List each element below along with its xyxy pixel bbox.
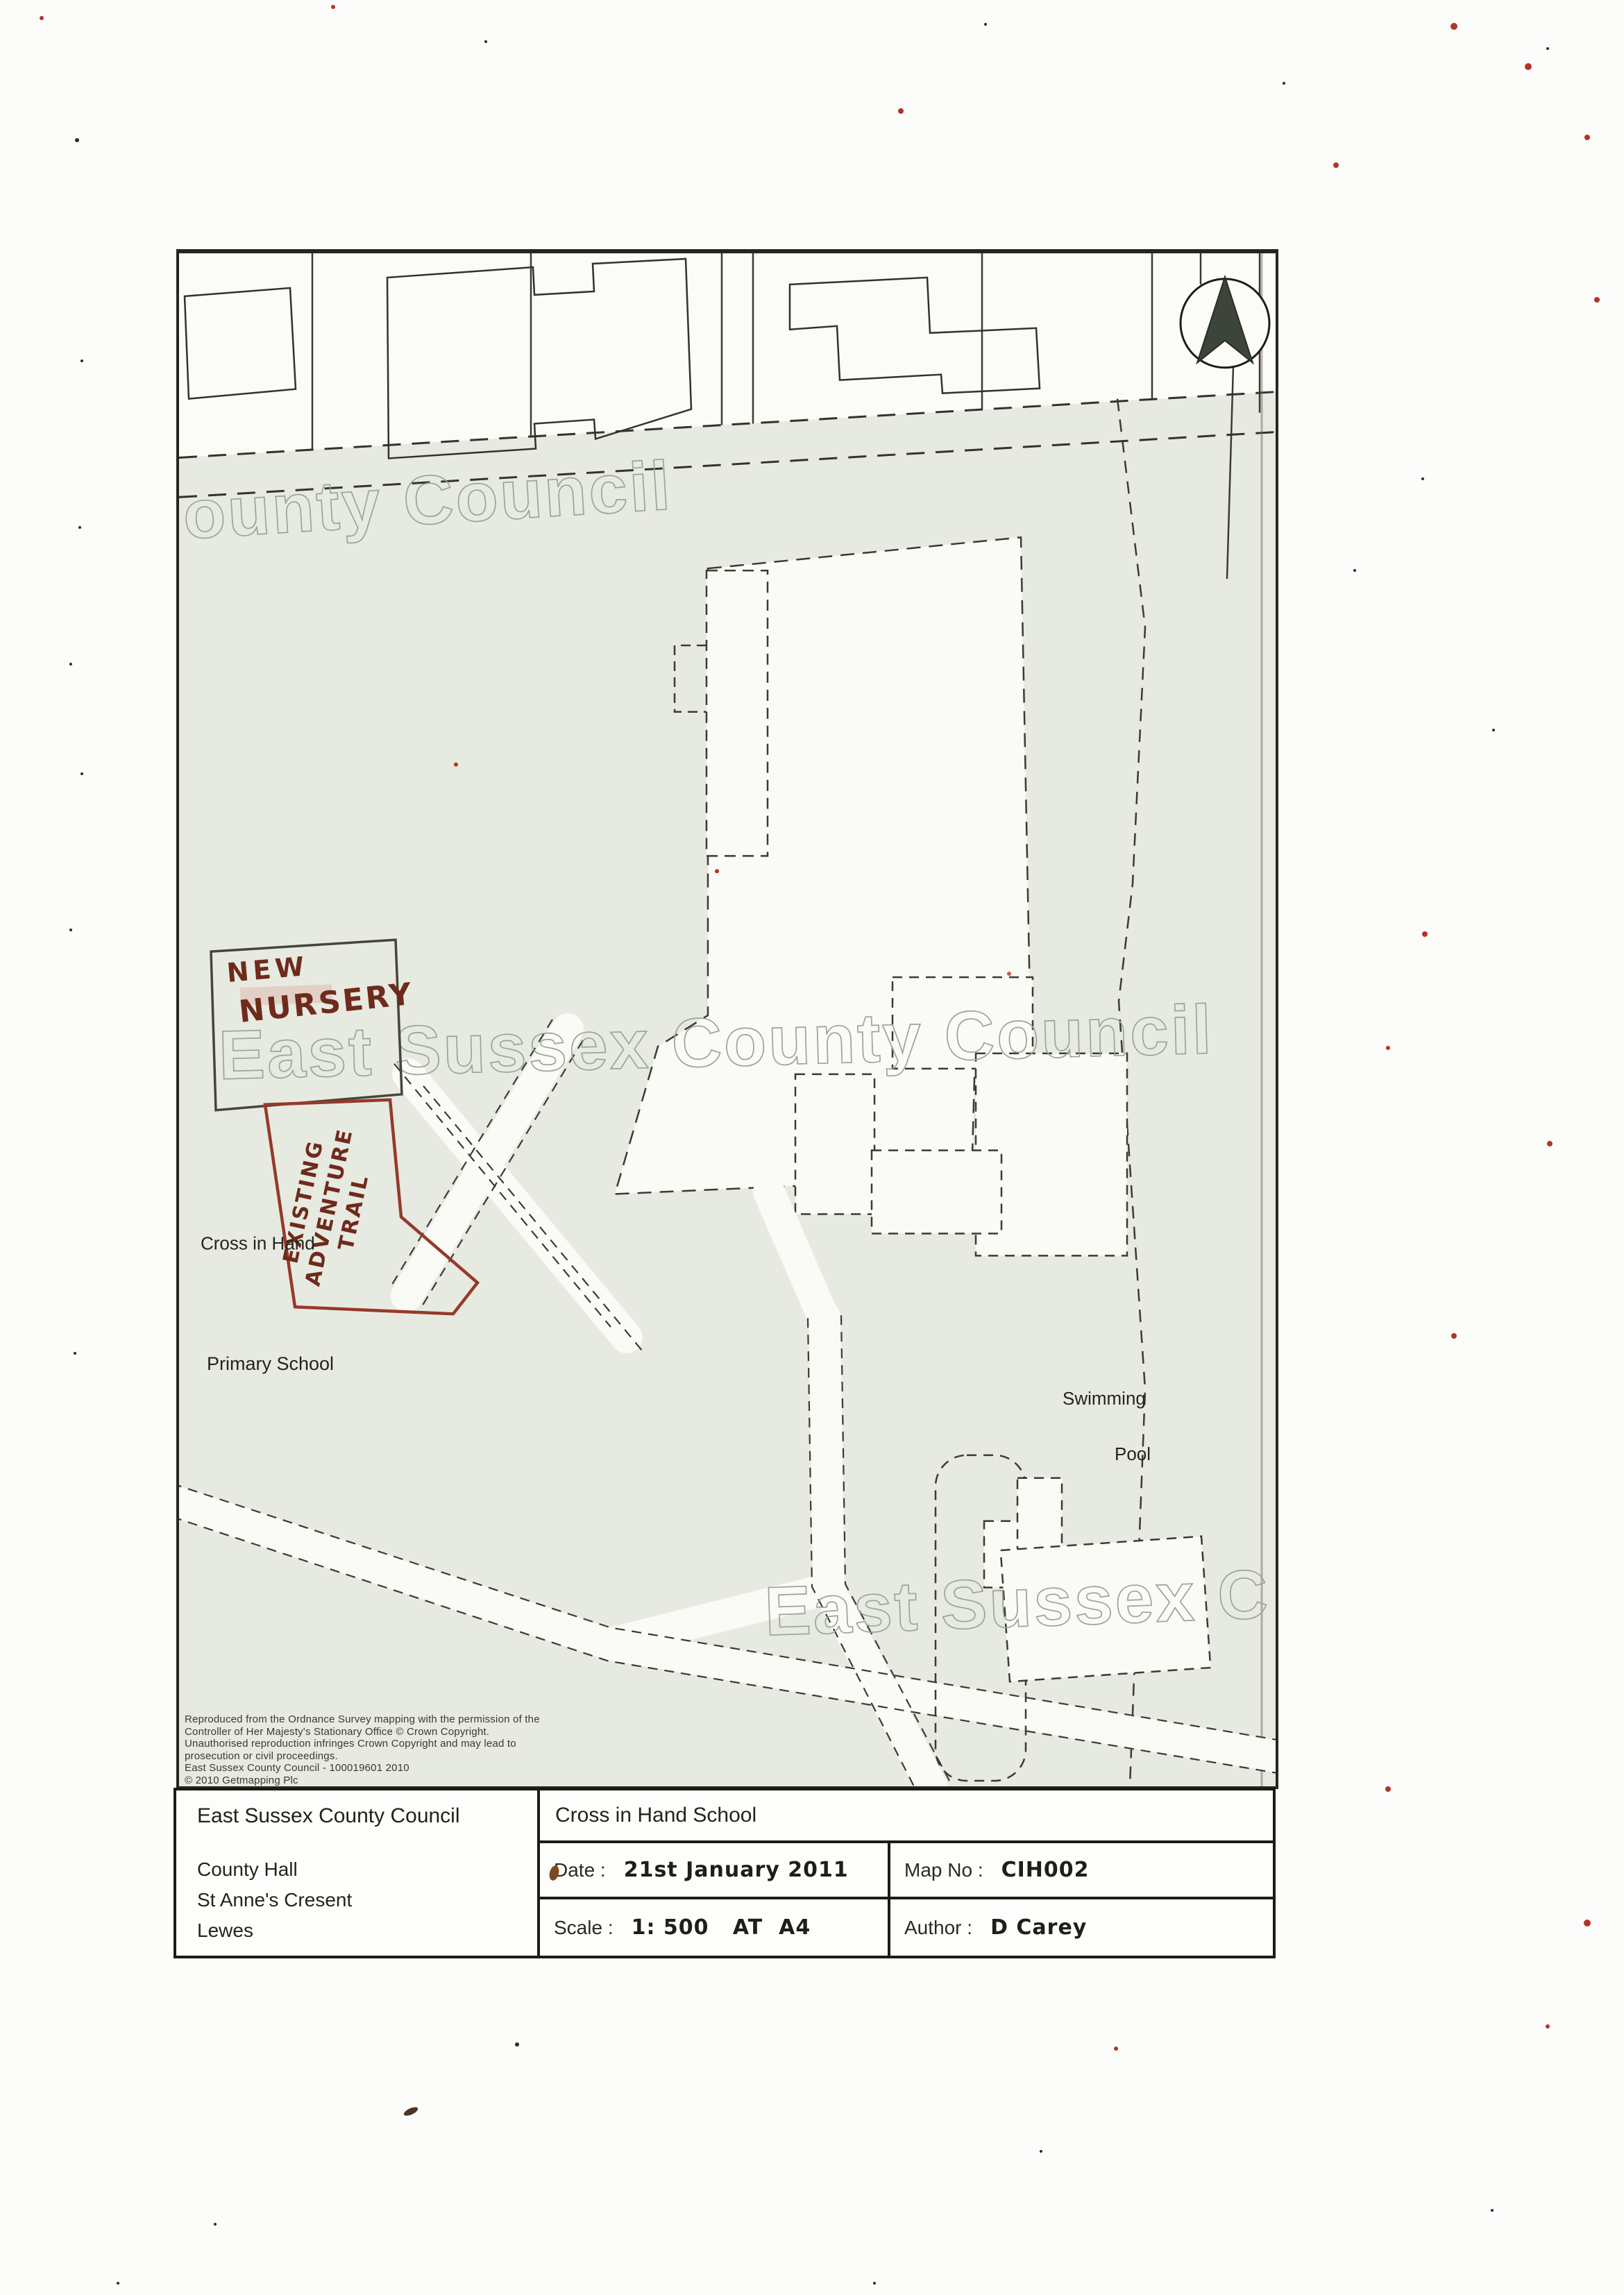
- date-value: 21st January 2011: [624, 1858, 849, 1882]
- author-value: D Carey: [990, 1915, 1087, 1940]
- title-block-row-1: Date : 21st January 2011 Map No : CIH002: [540, 1843, 1273, 1899]
- north-arrow-icon: [1181, 277, 1269, 368]
- author-label: Author :: [904, 1917, 972, 1939]
- title-block-details: Cross in Hand School Date : 21st January…: [540, 1790, 1273, 1956]
- copyright-line: Controller of Her Majesty's Stationary O…: [185, 1726, 587, 1738]
- address-line: St Anne's Cresent: [197, 1889, 352, 1911]
- label-swimming: Swimming: [1063, 1388, 1146, 1409]
- scale-label: Scale :: [554, 1917, 614, 1939]
- title-block: East Sussex County Council County Hall S…: [174, 1788, 1276, 1958]
- map-frame: ounty Council: [176, 249, 1278, 1789]
- copyright-notice: Reproduced from the Ordnance Survey mapp…: [185, 1713, 587, 1786]
- site-plan-map: ounty Council: [179, 253, 1276, 1786]
- address-line: County Hall: [197, 1858, 298, 1881]
- label-primary-school: Primary School: [207, 1353, 334, 1374]
- label-cross-in-hand: Cross in Hand: [201, 1233, 315, 1253]
- copyright-line: Reproduced from the Ordnance Survey mapp…: [185, 1713, 587, 1726]
- copyright-line: Unauthorised reproduction infringes Crow…: [185, 1738, 587, 1750]
- organisation-name: East Sussex County Council: [197, 1804, 460, 1828]
- scale-value: 1: 500 AT A4: [632, 1915, 811, 1940]
- pen-mark: [403, 2106, 419, 2117]
- copyright-line: East Sussex County Council - 100019601 2…: [185, 1762, 587, 1775]
- main-school-building: [707, 570, 768, 856]
- copyright-line: prosecution or civil proceedings.: [185, 1750, 587, 1763]
- address-line: Lewes: [197, 1920, 253, 1942]
- date-label: Date :: [554, 1859, 606, 1881]
- project-title: Cross in Hand School: [540, 1790, 1273, 1843]
- title-block-address-cell: East Sussex County Council County Hall S…: [176, 1790, 540, 1956]
- map-no-label: Map No :: [904, 1859, 983, 1881]
- scale-cell: Scale : 1: 500 AT A4: [540, 1899, 890, 1956]
- scanned-site-plan-page: ounty Council: [0, 0, 1624, 2295]
- title-block-row-2: Scale : 1: 500 AT A4 Author : D Carey: [540, 1899, 1273, 1956]
- copyright-line: © 2010 Getmapping Plc: [185, 1775, 587, 1787]
- map-no-value: CIH002: [1001, 1858, 1090, 1882]
- map-no-cell: Map No : CIH002: [890, 1843, 1273, 1897]
- date-cell: Date : 21st January 2011: [540, 1843, 890, 1897]
- author-cell: Author : D Carey: [890, 1899, 1273, 1956]
- label-pool: Pool: [1115, 1443, 1151, 1464]
